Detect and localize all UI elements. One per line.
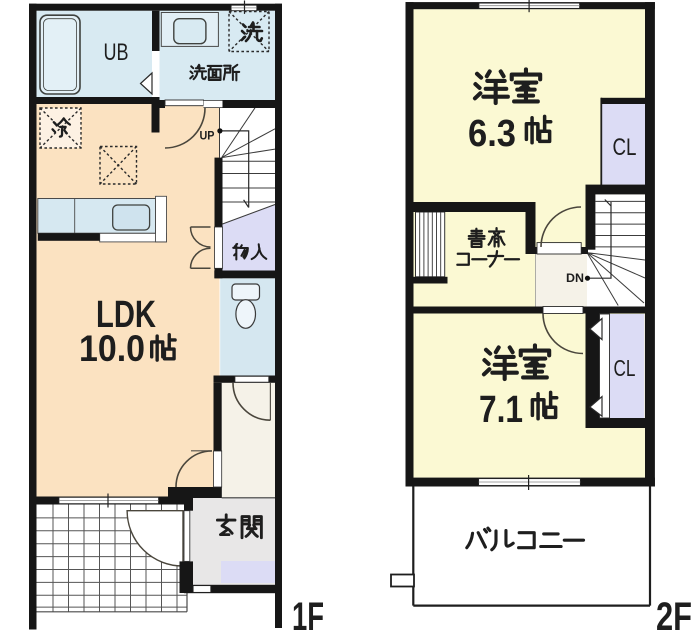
svg-text:6.3: 6.3: [468, 113, 516, 155]
svg-text:UB: UB: [104, 39, 129, 66]
svg-text:CL: CL: [614, 355, 636, 381]
svg-text:10.0: 10.0: [79, 328, 145, 369]
svg-text:1F: 1F: [292, 595, 324, 632]
svg-text:7.1: 7.1: [479, 389, 523, 431]
svg-text:DN: DN: [566, 273, 584, 285]
svg-text:2F: 2F: [656, 595, 692, 632]
svg-text:UP: UP: [200, 131, 215, 143]
svg-text:CL: CL: [613, 134, 637, 161]
